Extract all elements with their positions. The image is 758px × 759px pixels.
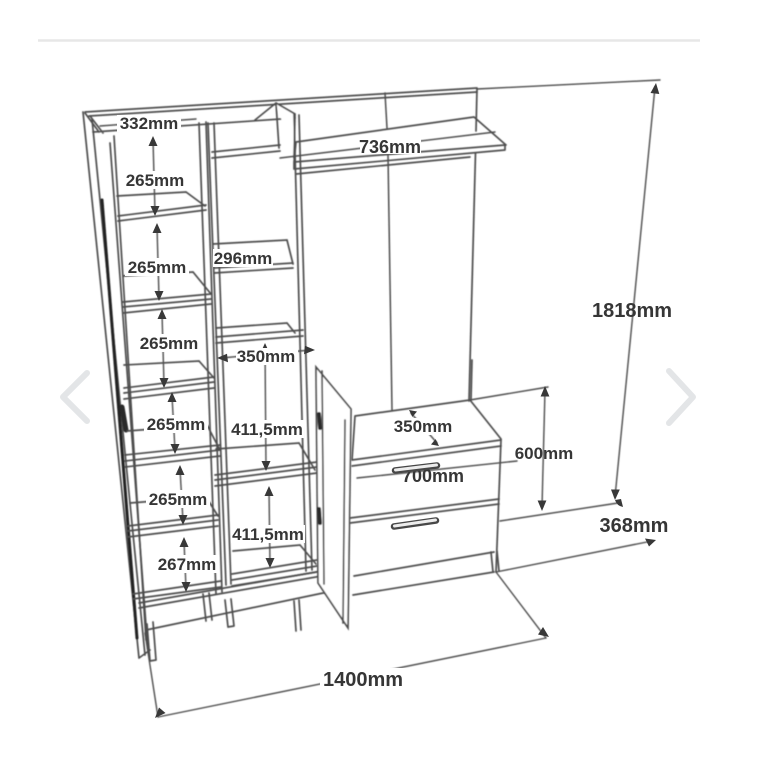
svg-text:332mm: 332mm [120,114,179,133]
svg-text:411,5mm: 411,5mm [231,420,303,439]
svg-text:350mm: 350mm [237,347,296,366]
svg-text:411,5mm: 411,5mm [232,525,304,544]
svg-text:265mm: 265mm [149,490,208,509]
svg-text:265mm: 265mm [126,171,185,190]
svg-text:265mm: 265mm [147,415,206,434]
svg-text:736mm: 736mm [359,137,421,157]
svg-text:600mm: 600mm [515,444,574,463]
svg-text:350mm: 350mm [394,417,453,436]
svg-text:265mm: 265mm [128,258,187,277]
svg-text:1818mm: 1818mm [592,300,672,322]
svg-text:296mm: 296mm [214,249,273,268]
svg-text:1400mm: 1400mm [323,669,403,691]
svg-text:267mm: 267mm [158,555,217,574]
svg-text:368mm: 368mm [600,515,669,537]
svg-text:265mm: 265mm [140,334,199,353]
